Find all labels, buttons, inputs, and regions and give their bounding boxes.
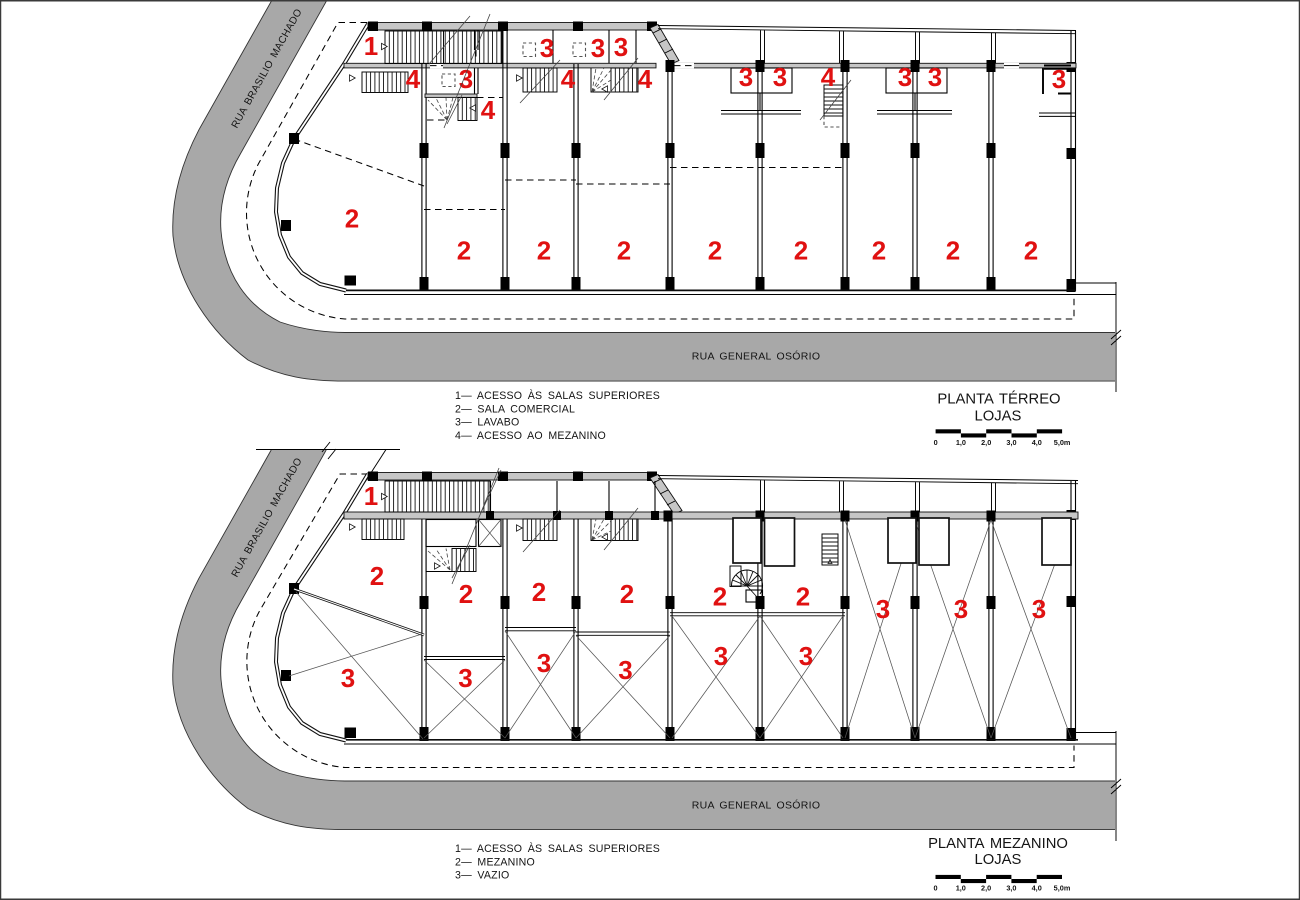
- svg-text:3— LAVABO: 3— LAVABO: [455, 417, 519, 429]
- svg-text:3: 3: [954, 594, 968, 624]
- svg-text:2: 2: [796, 582, 810, 612]
- svg-text:3: 3: [876, 594, 890, 624]
- svg-text:3— VAZIO: 3— VAZIO: [455, 870, 509, 882]
- svg-text:3: 3: [614, 32, 628, 62]
- svg-text:RUA GENERAL OSÓRIO: RUA GENERAL OSÓRIO: [692, 799, 821, 812]
- svg-text:2: 2: [457, 236, 471, 266]
- svg-text:2,0: 2,0: [981, 438, 991, 447]
- svg-text:3: 3: [773, 62, 787, 92]
- svg-text:3,0: 3,0: [1006, 438, 1016, 447]
- svg-text:PLANTA TÉRREO: PLANTA TÉRREO: [937, 391, 1060, 408]
- svg-text:3: 3: [618, 655, 632, 685]
- svg-text:0: 0: [934, 438, 938, 447]
- svg-text:LOJAS: LOJAS: [975, 852, 1022, 868]
- svg-text:1,0: 1,0: [956, 883, 966, 892]
- svg-text:1: 1: [364, 481, 378, 511]
- svg-text:2: 2: [620, 579, 634, 609]
- svg-text:2: 2: [713, 582, 727, 612]
- svg-text:3: 3: [540, 33, 554, 63]
- svg-text:RUA GENERAL OSÓRIO: RUA GENERAL OSÓRIO: [692, 350, 821, 363]
- svg-text:2: 2: [459, 579, 473, 609]
- svg-text:2: 2: [537, 236, 551, 266]
- svg-text:4,0: 4,0: [1032, 438, 1042, 447]
- svg-text:3,0: 3,0: [1006, 883, 1016, 892]
- svg-text:4: 4: [561, 64, 576, 94]
- svg-text:1— ACESSO ÀS SALAS SUPERIO: 1— ACESSO ÀS SALAS SUPERIORES: [455, 389, 660, 402]
- svg-text:5,0m: 5,0m: [1054, 883, 1071, 892]
- svg-text:3: 3: [714, 641, 728, 671]
- svg-text:4: 4: [406, 64, 421, 94]
- svg-text:PLANTA MEZANINO: PLANTA MEZANINO: [928, 836, 1068, 852]
- svg-text:1,0: 1,0: [956, 438, 966, 447]
- svg-text:3: 3: [739, 62, 753, 92]
- svg-text:2: 2: [946, 236, 960, 266]
- svg-text:3: 3: [591, 33, 605, 63]
- svg-text:2: 2: [708, 236, 722, 266]
- svg-text:2: 2: [532, 577, 546, 607]
- svg-text:4: 4: [481, 95, 496, 125]
- svg-text:2— MEZANINO: 2— MEZANINO: [455, 856, 535, 868]
- svg-text:2: 2: [370, 561, 384, 591]
- svg-text:0: 0: [933, 883, 937, 892]
- svg-text:3: 3: [459, 64, 473, 94]
- svg-text:2: 2: [617, 236, 631, 266]
- svg-text:3: 3: [799, 641, 813, 671]
- svg-text:4,0: 4,0: [1032, 883, 1042, 892]
- svg-text:LOJAS: LOJAS: [975, 409, 1022, 425]
- svg-text:3: 3: [928, 62, 942, 92]
- svg-text:1: 1: [364, 31, 378, 61]
- svg-text:3: 3: [898, 62, 912, 92]
- svg-text:2: 2: [1024, 236, 1038, 266]
- svg-text:4— ACESSO AO MEZANINO: 4— ACESSO AO MEZANINO: [455, 430, 606, 442]
- svg-text:4: 4: [821, 62, 836, 92]
- svg-text:3: 3: [1052, 64, 1066, 94]
- svg-text:3: 3: [537, 648, 551, 678]
- svg-text:2: 2: [794, 236, 808, 266]
- svg-text:2,0: 2,0: [981, 883, 991, 892]
- svg-text:1— ACESSO ÀS SALAS SUPERIO: 1— ACESSO ÀS SALAS SUPERIORES: [455, 842, 660, 855]
- svg-text:5,0m: 5,0m: [1054, 438, 1071, 447]
- svg-text:2— SALA COMERCIAL: 2— SALA COMERCIAL: [455, 403, 575, 415]
- svg-text:3: 3: [341, 663, 355, 693]
- svg-text:3: 3: [458, 663, 472, 693]
- svg-text:3: 3: [1032, 594, 1046, 624]
- svg-text:2: 2: [345, 204, 359, 234]
- svg-text:2: 2: [872, 236, 886, 266]
- svg-text:4: 4: [638, 64, 653, 94]
